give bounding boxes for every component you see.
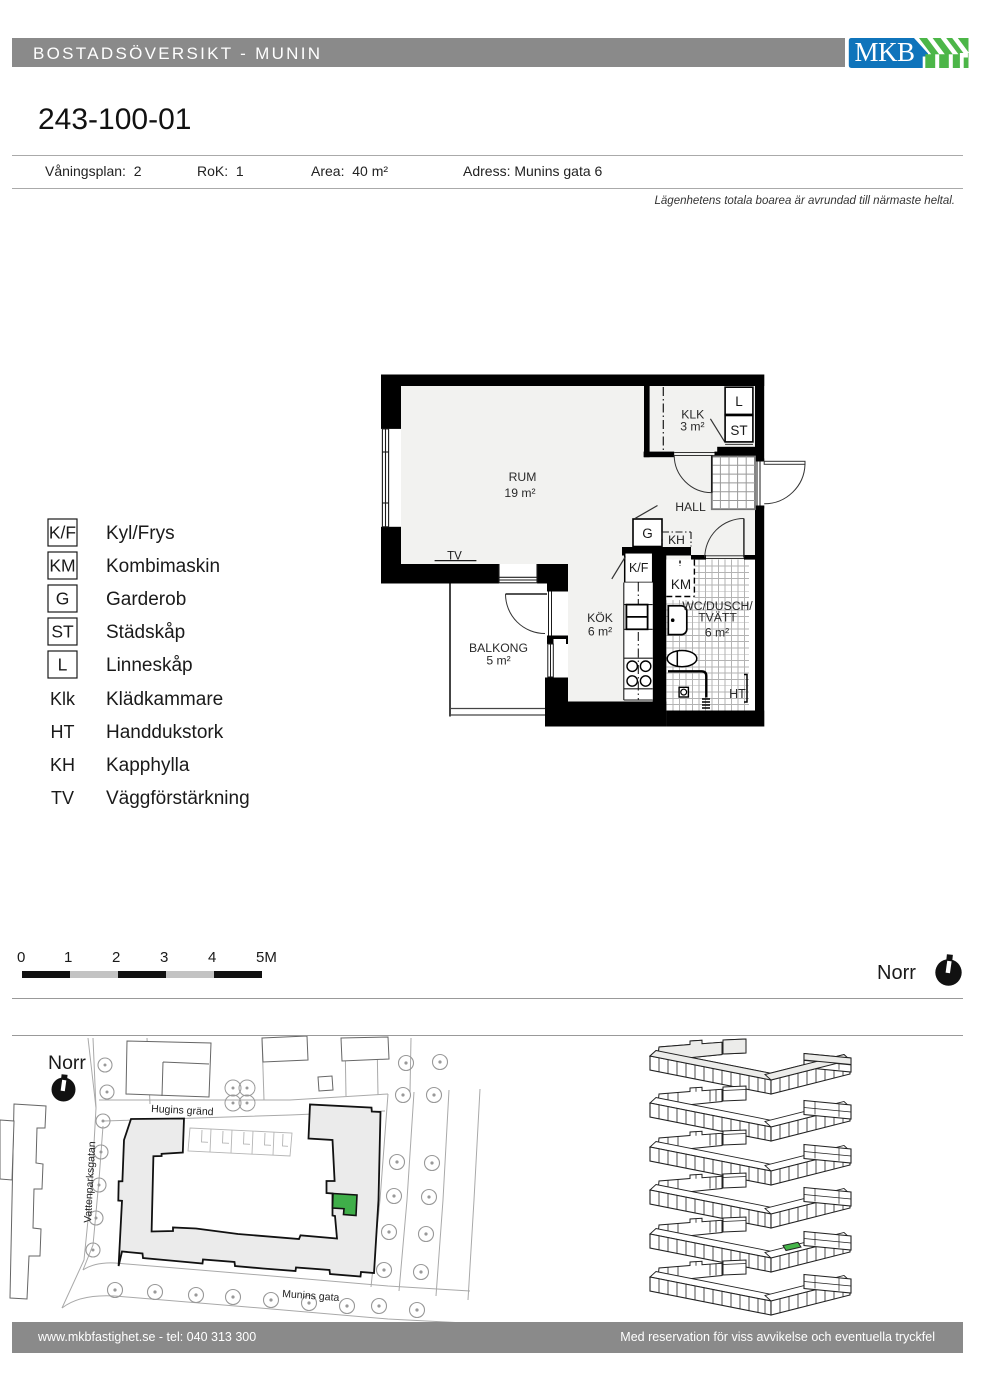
svg-text:Städskåp: Städskåp	[106, 622, 185, 643]
svg-text:ST: ST	[51, 622, 74, 642]
svg-text:0: 0	[17, 949, 25, 966]
svg-text:3 m²: 3 m²	[680, 420, 704, 434]
svg-text:Väggförstärkning: Väggförstärkning	[106, 788, 250, 809]
svg-text:19 m²: 19 m²	[504, 486, 535, 500]
svg-text:HT: HT	[729, 687, 746, 701]
svg-text:HT: HT	[51, 722, 75, 742]
svg-text:2: 2	[112, 949, 120, 966]
svg-text:5 m²: 5 m²	[486, 654, 510, 668]
svg-text:TV: TV	[51, 788, 74, 808]
svg-text:Hugins gränd: Hugins gränd	[151, 1103, 214, 1118]
svg-text:Garderob: Garderob	[106, 589, 186, 610]
svg-text:3: 3	[160, 949, 168, 966]
svg-text:KÖK: KÖK	[587, 611, 613, 625]
svg-text:TVÄTT: TVÄTT	[698, 611, 737, 625]
svg-text:Kapphylla: Kapphylla	[106, 755, 190, 776]
svg-text:KH: KH	[50, 755, 75, 775]
svg-text:Klk: Klk	[50, 689, 76, 709]
svg-text:ST: ST	[730, 423, 747, 438]
svg-text:6 m²: 6 m²	[588, 625, 612, 639]
svg-text:5M: 5M	[256, 949, 277, 966]
svg-text:1: 1	[64, 949, 72, 966]
svg-text:Kombimaskin: Kombimaskin	[106, 556, 220, 577]
svg-text:Handdukstork: Handdukstork	[106, 722, 224, 743]
svg-text:6 m²: 6 m²	[705, 626, 729, 640]
svg-text:KM: KM	[49, 556, 75, 576]
svg-text:Kyl/Frys: Kyl/Frys	[106, 523, 175, 544]
svg-text:K/F: K/F	[629, 561, 649, 575]
svg-text:G: G	[642, 526, 653, 541]
svg-text:Munins gata: Munins gata	[282, 1288, 340, 1304]
svg-text:K/F: K/F	[49, 523, 76, 543]
svg-text:RUM: RUM	[509, 470, 537, 484]
svg-text:Klädkammare: Klädkammare	[106, 689, 223, 710]
svg-text:L: L	[58, 655, 68, 675]
svg-text:G: G	[56, 589, 70, 609]
svg-text:HALL: HALL	[675, 500, 706, 514]
svg-text:Linneskåp: Linneskåp	[106, 655, 193, 676]
svg-text:L: L	[735, 394, 743, 409]
svg-text:MKB: MKB	[854, 37, 914, 67]
svg-text:Norr: Norr	[48, 1052, 86, 1074]
svg-text:KH: KH	[668, 533, 685, 547]
svg-text:KM: KM	[671, 577, 691, 592]
svg-text:4: 4	[208, 949, 216, 966]
